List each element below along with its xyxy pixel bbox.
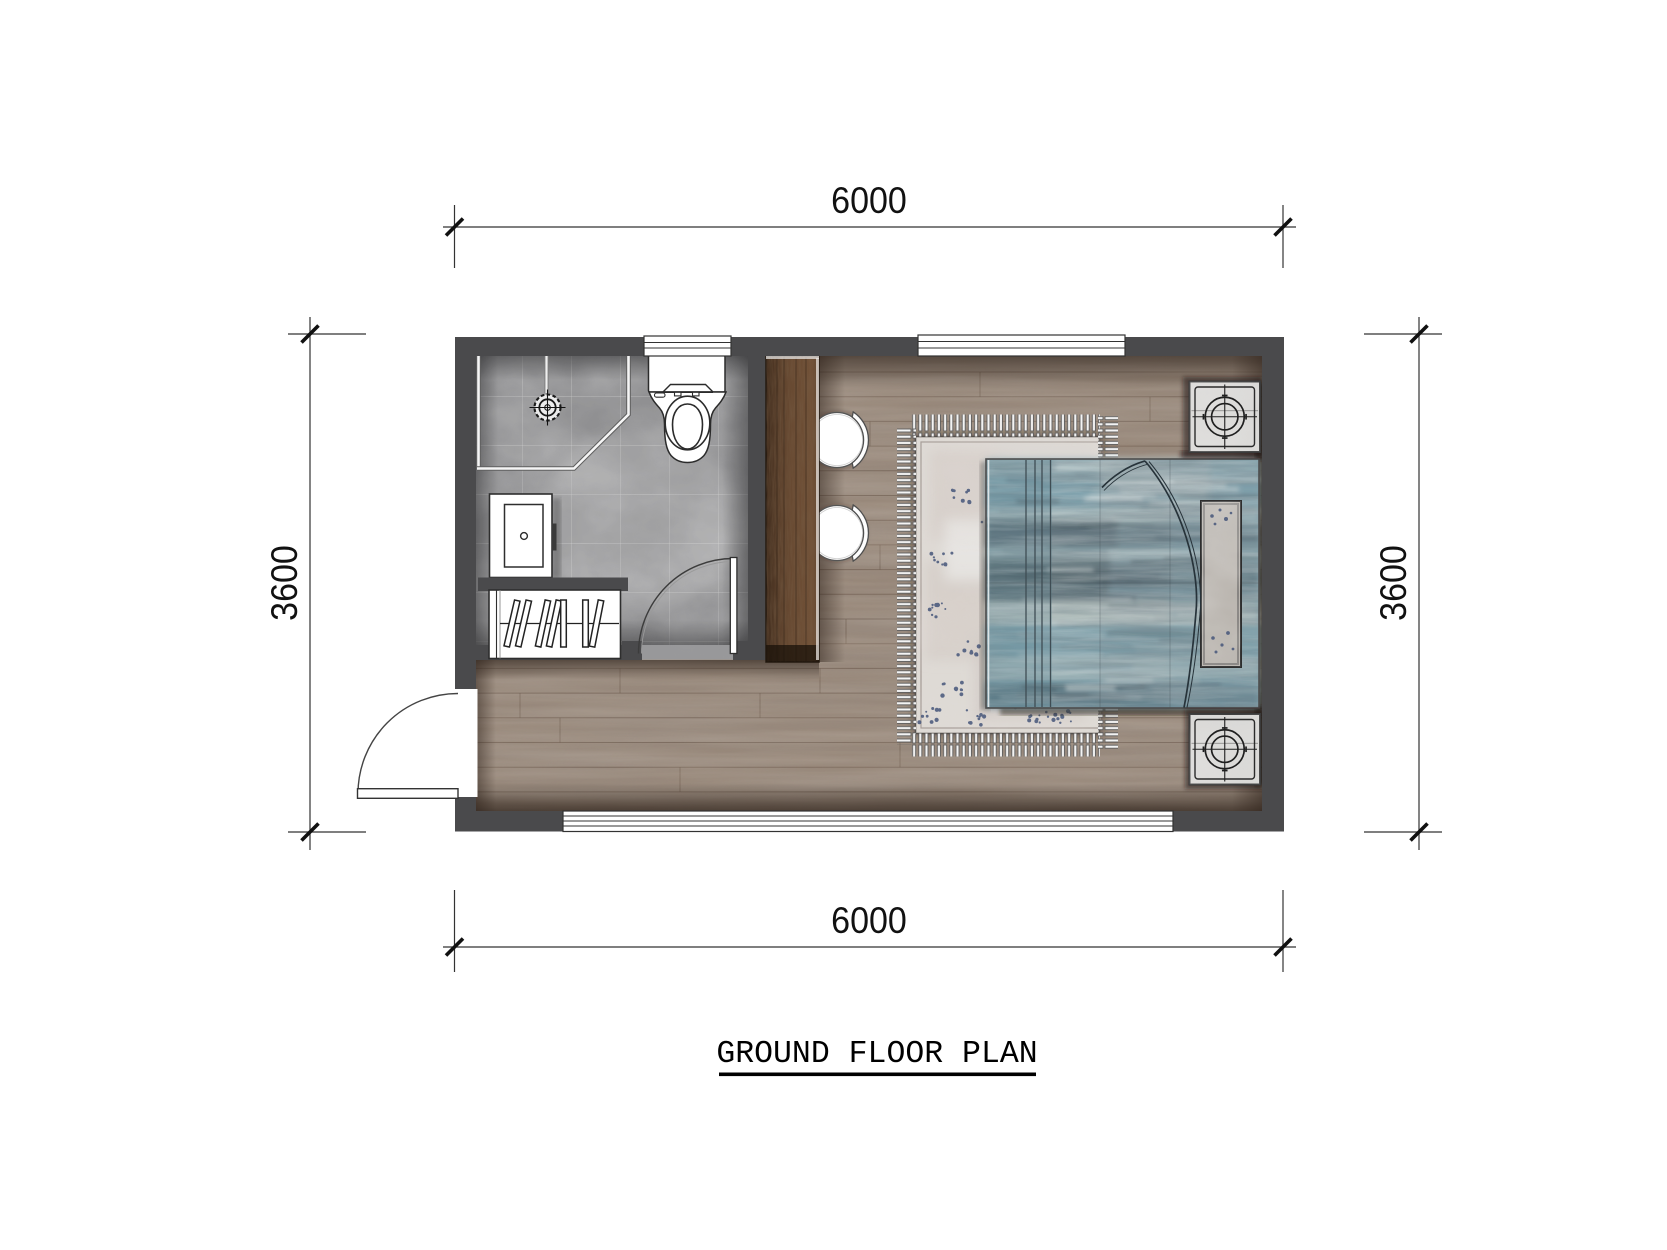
svg-text:3600: 3600: [1373, 545, 1415, 621]
svg-text:GROUND FLOOR PLAN: GROUND FLOOR PLAN: [716, 1037, 1037, 1072]
svg-text:3600: 3600: [264, 545, 306, 621]
svg-text:6000: 6000: [831, 900, 907, 942]
svg-text:6000: 6000: [831, 180, 907, 222]
